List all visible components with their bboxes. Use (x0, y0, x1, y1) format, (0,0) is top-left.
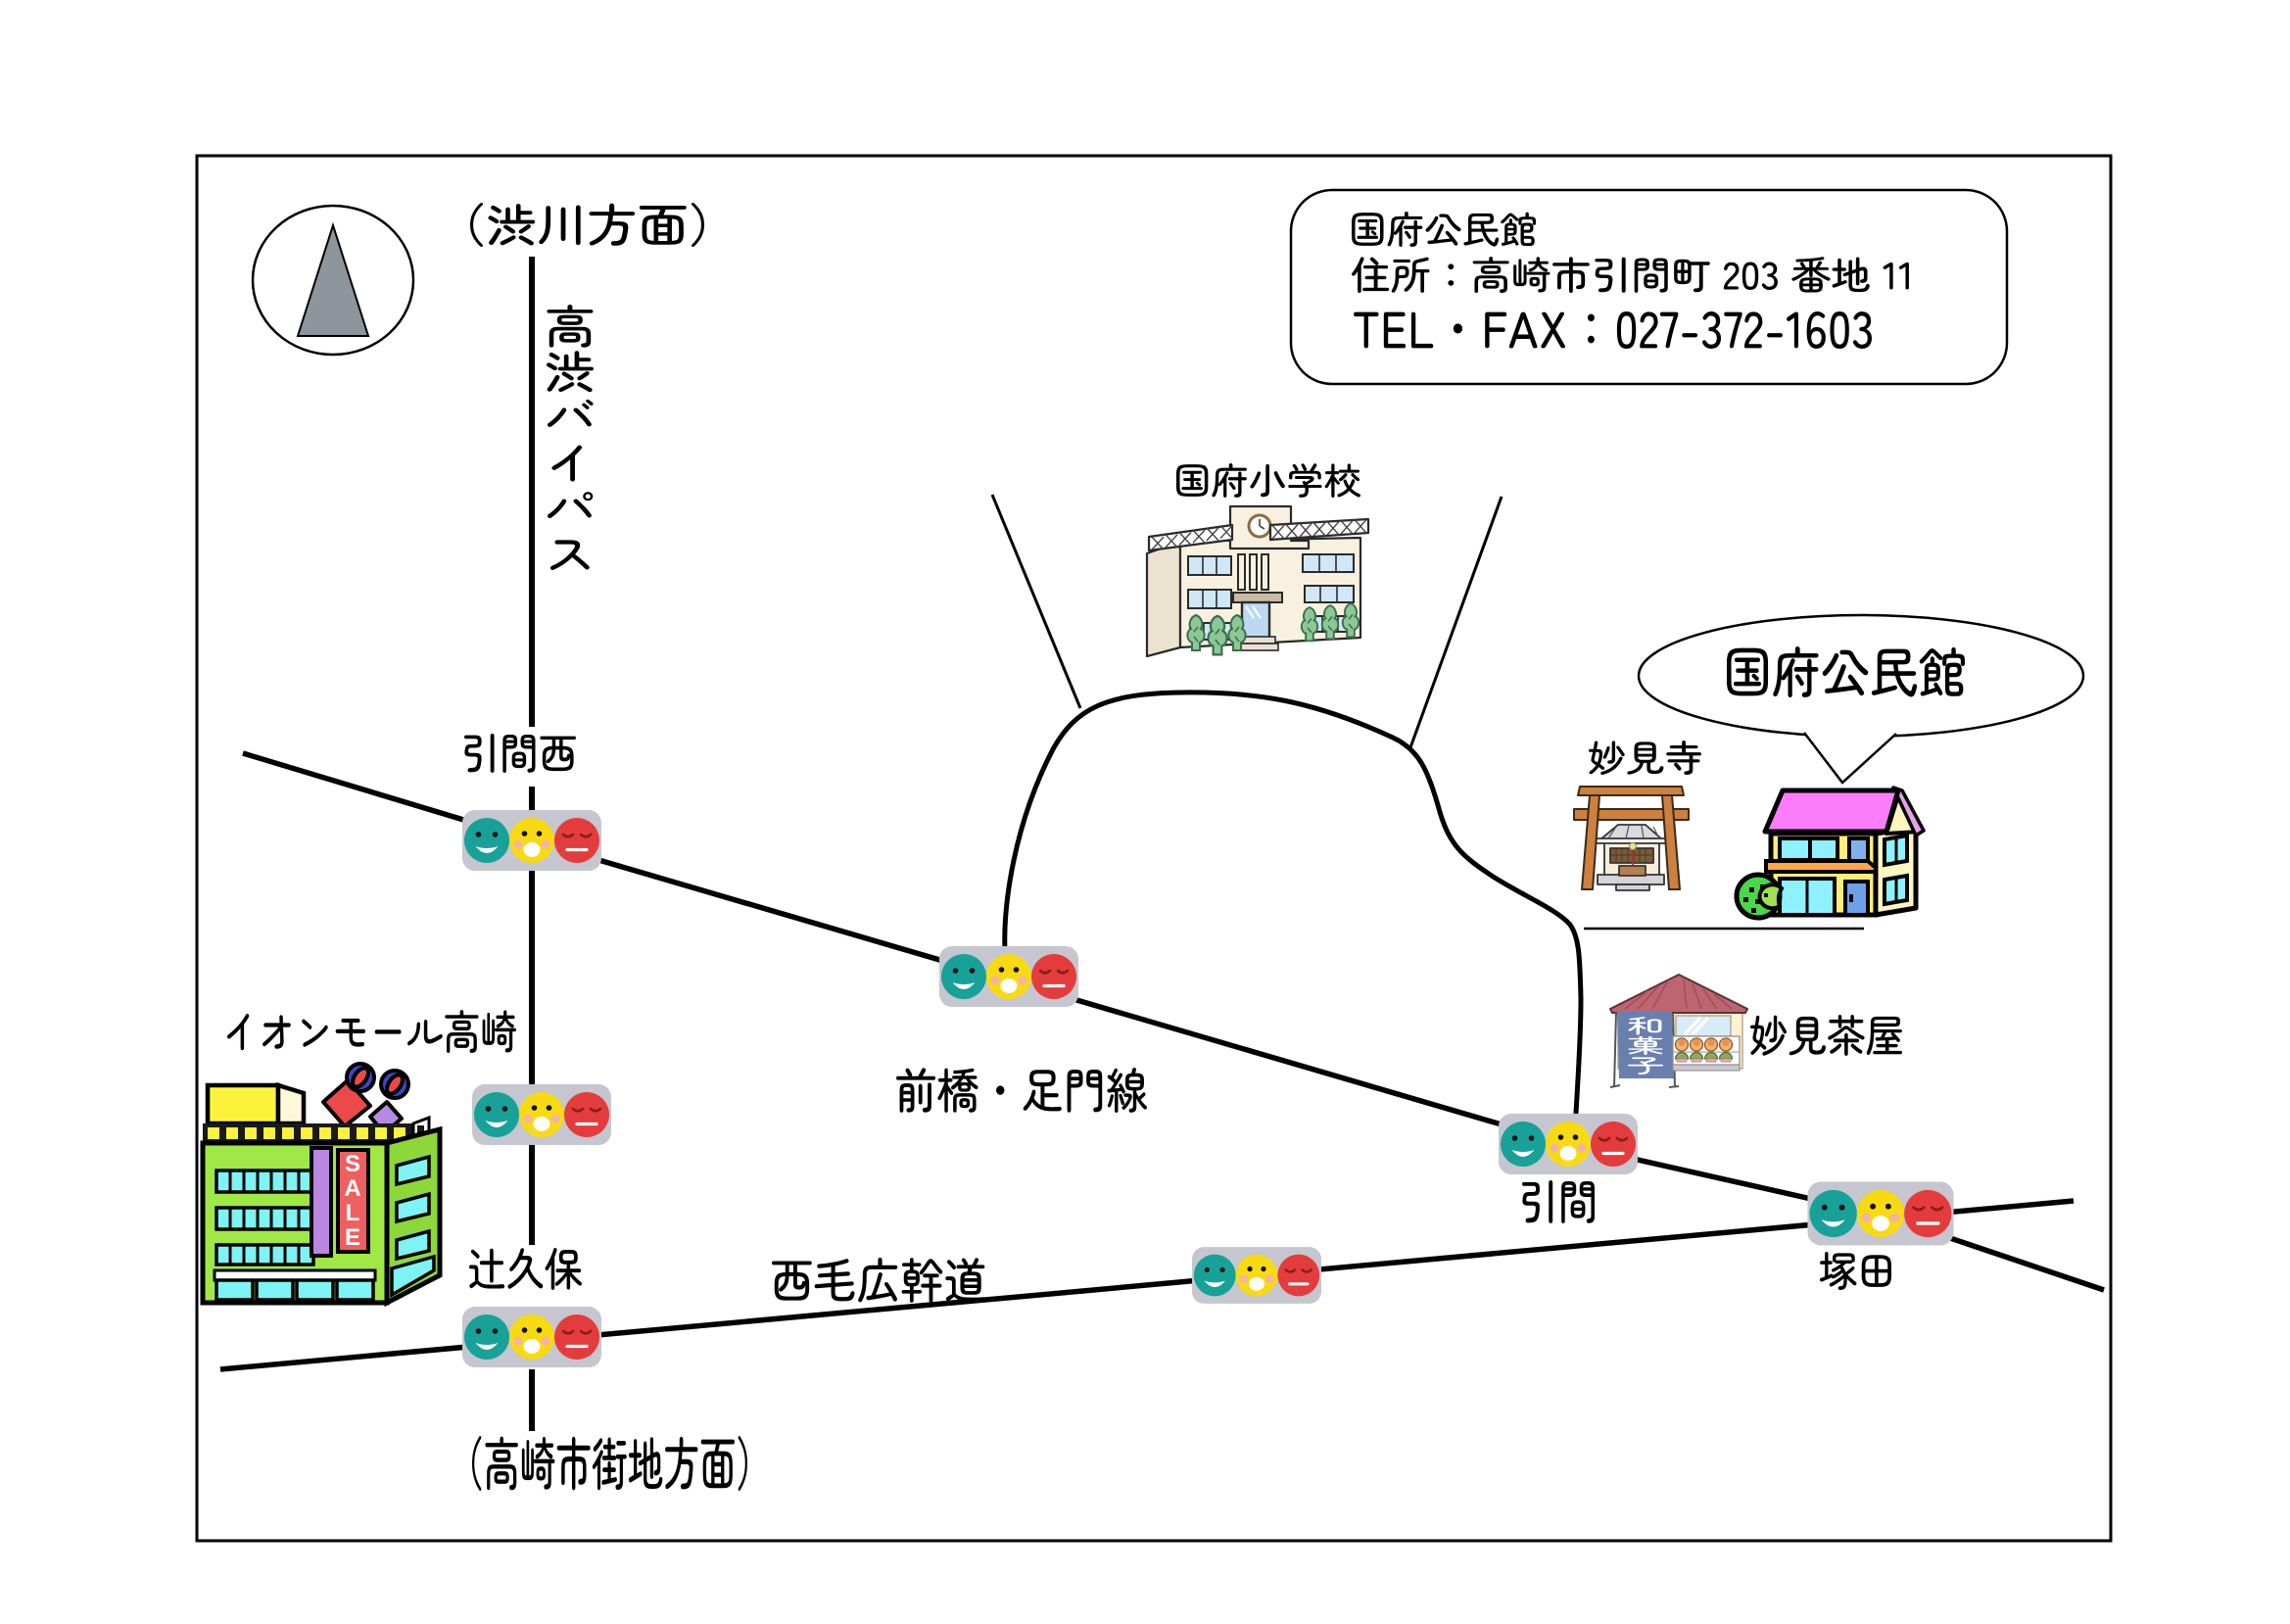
svg-text:SALE: SALE (344, 1151, 360, 1251)
